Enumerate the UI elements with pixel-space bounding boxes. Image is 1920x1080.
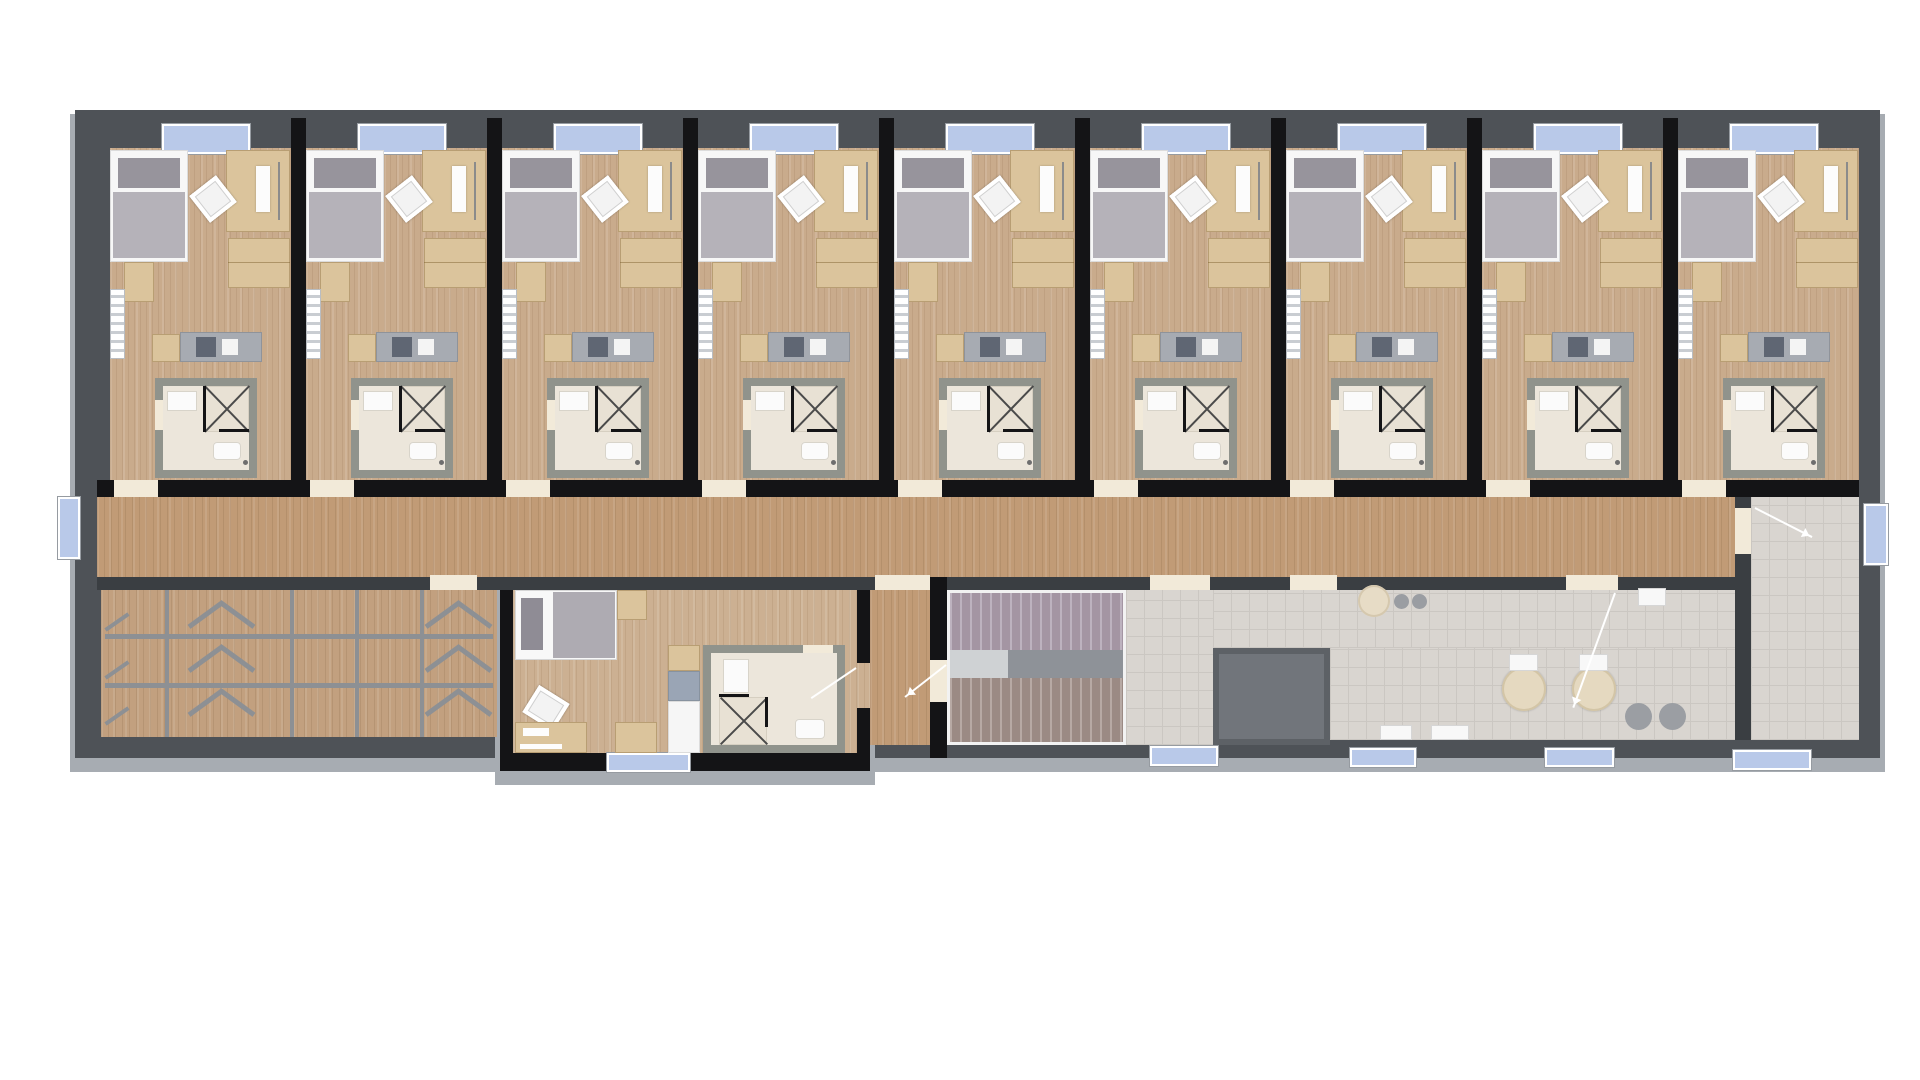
bed-pillow <box>1098 158 1160 188</box>
room-divider-wall <box>879 118 894 480</box>
bed-pillow <box>118 158 180 188</box>
room-2 <box>306 118 487 497</box>
bathroom-sink <box>167 391 197 411</box>
bathroom-door-gap <box>547 400 555 430</box>
bed-group <box>502 150 580 262</box>
room-3 <box>502 118 683 497</box>
room-bed <box>894 150 972 262</box>
common-round-table <box>1502 667 1546 711</box>
bathroom-toilet <box>1193 442 1221 460</box>
wardrobe <box>816 238 878 288</box>
counter-hob <box>1764 337 1784 357</box>
bed-pillow <box>1490 158 1552 188</box>
kitchenette-counter <box>1356 332 1438 362</box>
bathroom-floor <box>1731 386 1817 470</box>
bathroom-shower <box>1773 386 1817 432</box>
bathroom-door-gap <box>1135 400 1143 430</box>
counter-hob <box>196 337 216 357</box>
desk <box>1794 150 1858 232</box>
kitchenette-cabinet <box>668 645 700 671</box>
wardrobe <box>424 238 486 288</box>
bathroom-shower <box>793 386 837 432</box>
apartment-side-table <box>615 722 657 753</box>
desk <box>814 150 878 232</box>
stairwell <box>947 590 1126 745</box>
common-counter-hob <box>1394 594 1409 609</box>
apartment-bath-door <box>803 645 833 653</box>
bathroom-floor <box>163 386 249 470</box>
desk-pen <box>1062 162 1064 220</box>
apartment-bed-blanket <box>553 592 615 658</box>
bed-pillow <box>314 158 376 188</box>
counter-hob <box>588 337 608 357</box>
bathroom-door-gap <box>351 400 359 430</box>
room-bed <box>306 150 384 262</box>
room-bed <box>1090 150 1168 262</box>
kitchenette-counter <box>964 332 1046 362</box>
counter-hob <box>392 337 412 357</box>
counter-hob <box>1372 337 1392 357</box>
storage-rack-divider <box>355 590 359 737</box>
room-entry-door-threshold <box>702 480 746 497</box>
bedside-cabinet <box>1692 262 1722 302</box>
bed-blanket <box>701 192 773 258</box>
kitchenette-counter <box>1552 332 1634 362</box>
bathroom-drain <box>1615 460 1620 465</box>
radiator <box>1287 290 1300 358</box>
bathroom <box>547 378 649 478</box>
bathroom-drain <box>1811 460 1816 465</box>
shower-glass-wall <box>611 429 641 432</box>
bathroom-shower <box>1577 386 1621 432</box>
room-entry-door-threshold <box>1290 480 1334 497</box>
bed-pillow <box>1686 158 1748 188</box>
common-counter-sink-round <box>1358 585 1390 617</box>
bed-pillow <box>1294 158 1356 188</box>
bedside-cabinet <box>1496 262 1526 302</box>
bathroom-door-gap <box>1331 400 1339 430</box>
room-6 <box>1090 118 1271 497</box>
desk <box>1598 150 1662 232</box>
bathroom-inner <box>555 386 641 470</box>
desk-pen <box>1258 162 1260 220</box>
counter-sink <box>810 339 826 355</box>
apartment-bed-pillow <box>521 598 543 650</box>
bathroom-inner <box>163 386 249 470</box>
counter-sink <box>1398 339 1414 355</box>
bathroom-drain <box>1419 460 1424 465</box>
common-south-window <box>1545 748 1614 767</box>
kitchenette-cabinet <box>544 334 572 362</box>
apartment-desk <box>515 722 587 753</box>
bathroom-drain <box>243 460 248 465</box>
counter-group <box>572 332 654 362</box>
counter-sink <box>1594 339 1610 355</box>
common-room-west-door-threshold <box>1290 575 1337 591</box>
storage-rack-line <box>105 683 493 688</box>
desk-pen <box>474 162 476 220</box>
shower-glass-wall <box>1575 386 1578 432</box>
desk-pen <box>866 162 868 220</box>
room-bed <box>1286 150 1364 262</box>
room-divider-wall <box>1075 118 1090 480</box>
common-counter-hob <box>1412 594 1427 609</box>
bathroom-toilet <box>1781 442 1809 460</box>
counter-sink <box>1202 339 1218 355</box>
common-chair <box>1579 654 1608 671</box>
room-7 <box>1286 118 1467 497</box>
kitchenette-counter <box>376 332 458 362</box>
desk <box>226 150 290 232</box>
bathroom-shower <box>1185 386 1229 432</box>
bed-group <box>1090 150 1168 262</box>
room-bed <box>698 150 776 262</box>
counter-sink <box>614 339 630 355</box>
shower-glass-wall <box>203 386 206 432</box>
stair-stringer <box>1008 650 1123 678</box>
shower-glass-wall <box>1183 386 1186 432</box>
bathroom <box>1135 378 1237 478</box>
shower-glass-wall <box>987 386 990 432</box>
room-bed <box>1678 150 1756 262</box>
corridor-floor <box>97 497 1735 577</box>
wardrobe <box>1208 238 1270 288</box>
bed-blanket <box>1485 192 1557 258</box>
counter-sink <box>1006 339 1022 355</box>
room-5 <box>894 118 1075 497</box>
desk <box>422 150 486 232</box>
bathroom-door-gap <box>1723 400 1731 430</box>
apartment-double-bed <box>515 590 617 660</box>
desk-laptop <box>648 166 662 212</box>
counter-group <box>180 332 262 362</box>
desk <box>1402 150 1466 232</box>
east-vestibule-south-entrance <box>1733 750 1811 770</box>
stair-flight-upper <box>950 593 1123 650</box>
kitchenette-counter <box>180 332 262 362</box>
bed-group <box>1286 150 1364 262</box>
stair-vestibule-door-threshold <box>1150 575 1210 591</box>
bathroom-door-gap <box>1527 400 1535 430</box>
wardrobe <box>1600 238 1662 288</box>
bathroom-toilet <box>409 442 437 460</box>
desk-group <box>1010 150 1074 232</box>
wardrobe <box>228 238 290 288</box>
corridor-east-window <box>1864 504 1888 565</box>
apartment-south-window <box>607 753 690 772</box>
shower-glass-wall <box>1771 386 1774 432</box>
desk <box>1206 150 1270 232</box>
bathroom-group <box>1135 378 1237 478</box>
bathroom-shower <box>401 386 445 432</box>
counter-hob <box>1176 337 1196 357</box>
room-9 <box>1678 118 1859 497</box>
storage-rack-divider <box>420 590 424 737</box>
radiator <box>1091 290 1104 358</box>
room-entry-door-threshold <box>310 480 354 497</box>
bathroom-group <box>155 378 257 478</box>
desk <box>1010 150 1074 232</box>
bathroom-group <box>1527 378 1629 478</box>
counter-group <box>1356 332 1438 362</box>
desk-laptop <box>1824 166 1838 212</box>
shower-glass-wall <box>1199 429 1229 432</box>
bathroom-sink <box>951 391 981 411</box>
stair-vestibule-floor <box>1126 590 1213 745</box>
bedside-cabinet <box>908 262 938 302</box>
bathroom-floor <box>1339 386 1425 470</box>
bathroom <box>1331 378 1433 478</box>
storage-rack-line <box>105 634 493 639</box>
common-room-east-door-threshold <box>1566 575 1618 591</box>
desk-group <box>1402 150 1466 232</box>
shower-glass-wall <box>1787 429 1817 432</box>
bathroom-door-gap <box>743 400 751 430</box>
room-entry-door-threshold <box>1682 480 1726 497</box>
shower-glass-wall <box>1003 429 1033 432</box>
bathroom-door-gap <box>939 400 947 430</box>
bed-pillow <box>706 158 768 188</box>
bathroom-shower <box>597 386 641 432</box>
kitchenette-cabinet <box>740 334 768 362</box>
bedside-cabinet <box>124 262 154 302</box>
bathroom-group <box>1331 378 1433 478</box>
bathroom-inner <box>1731 386 1817 470</box>
common-floor-mat <box>1380 725 1412 740</box>
common-chair <box>1509 654 1538 671</box>
kitchenette-cabinet <box>936 334 964 362</box>
bathroom-toilet <box>997 442 1025 460</box>
common-south-window <box>1350 748 1416 767</box>
counter-hob <box>1568 337 1588 357</box>
bathroom-floor <box>1535 386 1621 470</box>
bed-blanket <box>1681 192 1753 258</box>
bathroom-toilet <box>605 442 633 460</box>
bathroom-sink <box>1147 391 1177 411</box>
room-4 <box>698 118 879 497</box>
bathroom-group <box>1723 378 1825 478</box>
desk-laptop <box>844 166 858 212</box>
room-8 <box>1482 118 1663 497</box>
desk-group <box>1794 150 1858 232</box>
bathroom-group <box>939 378 1041 478</box>
room-divider-wall <box>683 118 698 480</box>
bathroom-inner <box>359 386 445 470</box>
shower-glass-wall <box>1591 429 1621 432</box>
common-small-table <box>1638 588 1666 606</box>
counter-hob <box>784 337 804 357</box>
bed-blanket <box>1289 192 1361 258</box>
shower-glass-wall <box>1379 386 1382 432</box>
counter-sink <box>222 339 238 355</box>
kitchenette-cabinet <box>1132 334 1160 362</box>
room-divider-wall <box>1663 118 1678 480</box>
shower-glass-wall <box>719 694 749 697</box>
bathroom-sink <box>1735 391 1765 411</box>
bathroom-drain <box>1027 460 1032 465</box>
wardrobe <box>1012 238 1074 288</box>
bathroom-sink <box>559 391 589 411</box>
bathroom <box>743 378 845 478</box>
bathroom-inner <box>751 386 837 470</box>
bed-blanket <box>113 192 185 258</box>
storage-rack-divider <box>290 590 294 737</box>
bathroom-group <box>547 378 649 478</box>
desk <box>618 150 682 232</box>
apartment-bath-sink <box>723 659 749 693</box>
desk-group <box>618 150 682 232</box>
bathroom-shower <box>989 386 1033 432</box>
bathroom-inner <box>947 386 1033 470</box>
apartment-bedside-cabinet <box>617 590 647 620</box>
bathroom-shower <box>205 386 249 432</box>
kitchenette-counter <box>1748 332 1830 362</box>
shower-glass-wall <box>765 697 768 727</box>
room-divider-wall <box>487 118 502 480</box>
apartment-kitchenette <box>668 645 700 753</box>
room-divider-wall <box>1271 118 1286 480</box>
bathroom <box>351 378 453 478</box>
bathroom-inner <box>1143 386 1229 470</box>
east-vestibule-door-gap <box>1735 508 1751 554</box>
wardrobe <box>1404 238 1466 288</box>
kitchenette-counter <box>572 332 654 362</box>
shower-glass-wall <box>415 429 445 432</box>
apartment-bath-toilet <box>795 719 825 739</box>
desk-pen <box>1454 162 1456 220</box>
entry-hall-floor <box>870 590 930 745</box>
bedside-cabinet <box>516 262 546 302</box>
radiator <box>1679 290 1692 358</box>
bed-group <box>698 150 776 262</box>
room-divider-wall <box>291 118 306 480</box>
shower-glass-wall <box>807 429 837 432</box>
room-1 <box>110 118 291 497</box>
common-pouf <box>1625 703 1652 730</box>
desk-laptop <box>256 166 270 212</box>
bed-group <box>110 150 188 262</box>
bed-blanket <box>309 192 381 258</box>
desk-group <box>814 150 878 232</box>
apartment-desk-laptop <box>523 728 549 736</box>
bathroom-drain <box>831 460 836 465</box>
desk-laptop <box>1432 166 1446 212</box>
entry-hall-door-threshold <box>875 575 930 591</box>
room-entry-door-threshold <box>506 480 550 497</box>
storage-rack-divider <box>165 590 169 737</box>
bed-blanket <box>1093 192 1165 258</box>
bathroom-toilet <box>801 442 829 460</box>
kitchenette-cabinet <box>1720 334 1748 362</box>
kitchenette-cabinet <box>1524 334 1552 362</box>
desk-pen <box>278 162 280 220</box>
room-bed <box>1482 150 1560 262</box>
desk-pen <box>670 162 672 220</box>
bathroom-sink <box>755 391 785 411</box>
radiator <box>895 290 908 358</box>
bathroom-floor <box>947 386 1033 470</box>
elevator-shaft <box>1213 648 1330 745</box>
room-divider-wall <box>1467 118 1482 480</box>
common-pouf <box>1659 703 1686 730</box>
kitchenette-counter <box>768 332 850 362</box>
counter-sink <box>418 339 434 355</box>
radiator <box>699 290 712 358</box>
desk-laptop <box>452 166 466 212</box>
stair-landing <box>950 650 1008 678</box>
apartment-bathroom <box>703 645 845 753</box>
bathroom-floor <box>359 386 445 470</box>
bed-group <box>1678 150 1756 262</box>
floor-plan-canvas <box>0 0 1920 1080</box>
desk-group <box>422 150 486 232</box>
radiator <box>111 290 124 358</box>
bathroom <box>1723 378 1825 478</box>
desk-pen <box>1846 162 1848 220</box>
bathroom-sink <box>1343 391 1373 411</box>
counter-group <box>376 332 458 362</box>
bathroom-toilet <box>213 442 241 460</box>
counter-group <box>1748 332 1830 362</box>
bathroom-sink <box>1539 391 1569 411</box>
bedside-cabinet <box>1300 262 1330 302</box>
bathroom-floor <box>751 386 837 470</box>
kitchenette-counter <box>668 701 700 753</box>
bathroom <box>939 378 1041 478</box>
apartment-bath-shower <box>719 697 767 745</box>
bathroom <box>1527 378 1629 478</box>
bathroom-drain <box>1223 460 1228 465</box>
shower-glass-wall <box>1395 429 1425 432</box>
room-entry-door-threshold <box>898 480 942 497</box>
kitchenette-cabinet <box>152 334 180 362</box>
room-entry-door-threshold <box>1094 480 1138 497</box>
bathroom-inner <box>1339 386 1425 470</box>
radiator <box>503 290 516 358</box>
bed-blanket <box>897 192 969 258</box>
bathroom-drain <box>635 460 640 465</box>
bedside-cabinet <box>712 262 742 302</box>
bathroom-drain <box>439 460 444 465</box>
corridor-west-window <box>58 497 80 559</box>
desk-group <box>1598 150 1662 232</box>
room-entry-door-threshold <box>114 480 158 497</box>
desk-laptop <box>1236 166 1250 212</box>
wardrobe <box>1796 238 1858 288</box>
room-bed <box>502 150 580 262</box>
kitchenette-cabinet <box>348 334 376 362</box>
radiator <box>307 290 320 358</box>
shower-glass-wall <box>791 386 794 432</box>
desk-pen <box>1650 162 1652 220</box>
stair-flight-lower <box>950 678 1123 742</box>
bathroom-group <box>351 378 453 478</box>
bed-pillow <box>902 158 964 188</box>
shower-glass-wall <box>595 386 598 432</box>
room-bed <box>110 150 188 262</box>
shower-glass-wall <box>399 386 402 432</box>
bathroom-shower <box>1381 386 1425 432</box>
room-entry-door-threshold <box>1486 480 1530 497</box>
counter-sink <box>1790 339 1806 355</box>
bathroom-sink <box>363 391 393 411</box>
desk-group <box>226 150 290 232</box>
kitchenette-fridge <box>668 671 700 701</box>
bathroom-floor <box>1143 386 1229 470</box>
kitchenette-counter <box>1160 332 1242 362</box>
desk-laptop <box>1628 166 1642 212</box>
stair-vestibule-south-exit <box>1150 746 1218 766</box>
